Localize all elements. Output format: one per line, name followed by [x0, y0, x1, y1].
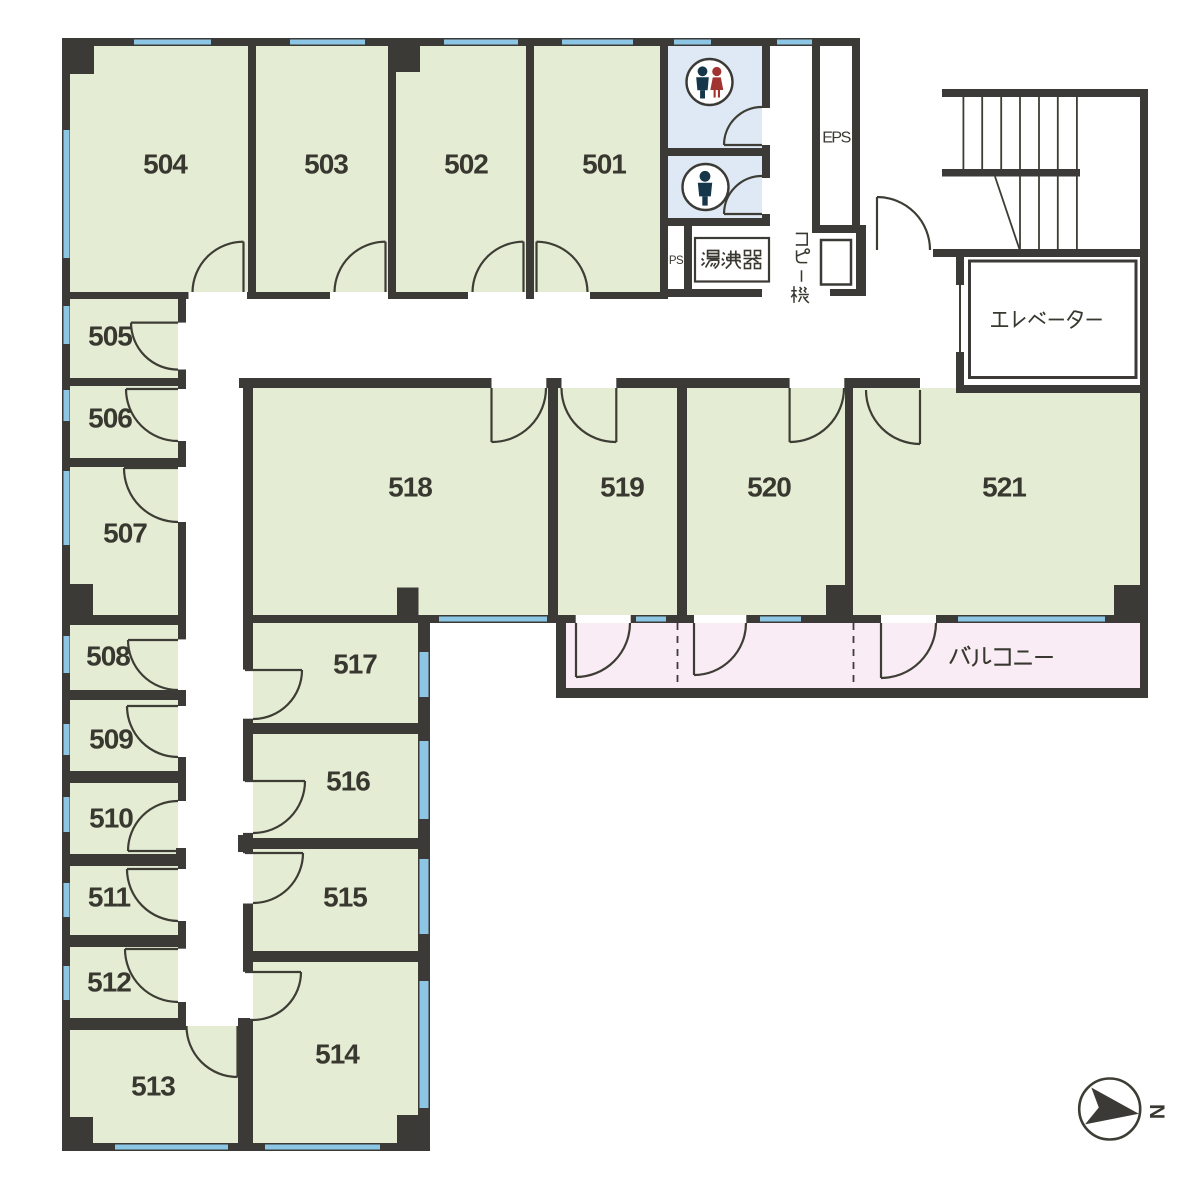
svg-text:515: 515	[323, 882, 367, 913]
svg-text:518: 518	[388, 472, 432, 503]
svg-text:520: 520	[747, 472, 791, 503]
svg-text:519: 519	[600, 472, 644, 503]
svg-text:508: 508	[86, 641, 130, 672]
svg-text:503: 503	[304, 149, 348, 180]
svg-text:501: 501	[582, 149, 626, 180]
svg-text:511: 511	[88, 882, 131, 913]
svg-text:521: 521	[982, 472, 1026, 503]
svg-text:507: 507	[103, 518, 147, 549]
svg-text:514: 514	[315, 1039, 360, 1070]
svg-text:513: 513	[131, 1071, 175, 1102]
svg-text:PS: PS	[669, 255, 684, 267]
svg-text:EPS: EPS	[822, 130, 850, 147]
svg-text:512: 512	[87, 967, 131, 998]
svg-text:517: 517	[333, 649, 377, 680]
svg-text:516: 516	[326, 766, 370, 797]
svg-text:510: 510	[89, 803, 133, 834]
svg-text:506: 506	[88, 403, 132, 434]
svg-text:509: 509	[89, 724, 133, 755]
svg-text:505: 505	[88, 321, 132, 352]
svg-text:504: 504	[143, 149, 188, 180]
svg-text:N: N	[1145, 1104, 1168, 1119]
svg-text:502: 502	[444, 149, 488, 180]
